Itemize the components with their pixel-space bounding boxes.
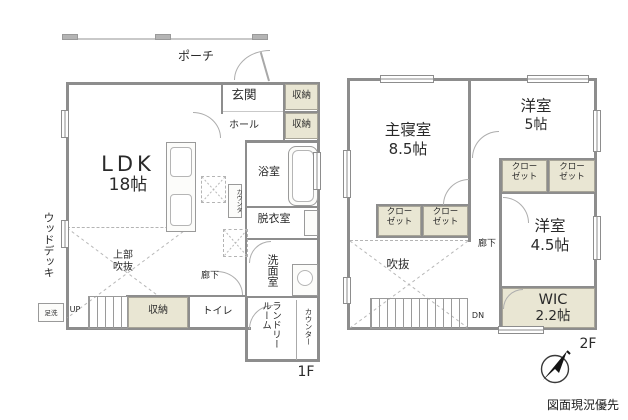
foot-wash-box: 足洗 — [38, 303, 64, 322]
wall — [247, 206, 318, 208]
bedroom5-size-label: 5帖 — [500, 117, 572, 133]
hall-storage-label: 収納 — [285, 120, 318, 131]
counter-divider — [296, 300, 297, 360]
master-bedroom-name-label: 主寝室 — [366, 122, 450, 140]
upper-void-label: 上部 吹抜 — [103, 250, 143, 273]
hall-label: ホール — [222, 120, 266, 132]
wic-name-label: WIC — [522, 292, 584, 309]
ldk-name-label: LDK — [88, 152, 168, 176]
foot-wash-label: 足洗 — [39, 304, 63, 323]
wic-size-label: 2.2帖 — [522, 309, 584, 325]
wall — [245, 140, 320, 143]
floor2-label: 2F — [574, 336, 602, 352]
wall — [376, 236, 468, 238]
kitchen-sink — [170, 147, 192, 177]
storage-label: 収納 — [128, 305, 188, 317]
closet-label: クロー ゼット — [549, 163, 595, 183]
closet-label: クロー ゼット — [423, 208, 468, 228]
disclaimer-text: 図面現況優先 — [542, 399, 624, 413]
washing-machine — [304, 210, 318, 236]
floor1-label: 1F — [292, 364, 320, 380]
window — [343, 277, 351, 304]
north-arrow-icon — [534, 344, 578, 388]
compass-icon — [534, 344, 578, 388]
stairs-up — [88, 296, 128, 329]
wall — [247, 238, 318, 240]
dressing-room-label: 脱衣室 — [246, 213, 302, 226]
wall — [247, 296, 318, 298]
toilet-label: トイレ — [190, 306, 245, 318]
window — [343, 150, 351, 198]
bedroom5-name-label: 洋室 — [500, 98, 572, 116]
dashed-x — [224, 230, 247, 256]
floor-plan: ポーチ 上部 吹抜 カウンタ — [0, 0, 628, 420]
window — [593, 216, 601, 260]
window — [61, 110, 69, 138]
entrance-storage-label: 収納 — [285, 91, 318, 102]
porch-label: ポーチ — [166, 50, 226, 64]
ldk-size-label: 18帖 — [88, 176, 168, 196]
bathtub-inner — [292, 150, 314, 202]
wall — [223, 111, 283, 112]
porch-post — [252, 34, 268, 40]
laundry-room-label: ランドリールーム — [254, 301, 280, 357]
stairs-up-label: UP — [64, 305, 86, 314]
window — [498, 326, 544, 334]
closet-label: クロー ゼット — [378, 208, 421, 228]
washroom-label: 洗面室 — [262, 244, 278, 296]
window — [593, 110, 601, 152]
kitchen-side-counter: カウンタ — [228, 184, 242, 218]
vanity-sink — [297, 270, 313, 286]
furniture-placeholder — [201, 176, 226, 203]
window — [380, 75, 434, 83]
stairs-down-label: DN — [466, 311, 490, 320]
dashed-x — [202, 177, 225, 202]
window — [527, 75, 589, 83]
corridor-label-1f: 廊下 — [196, 271, 224, 281]
porch-post — [62, 34, 78, 40]
wall — [502, 192, 597, 194]
void-label: 吹抜 — [378, 258, 418, 271]
kitchen-counter-label: カウンタ — [229, 185, 241, 217]
wall — [468, 78, 471, 242]
bedroom45-size-label: 4.5帖 — [512, 237, 588, 254]
counter-label: カウンター — [299, 308, 312, 358]
window — [313, 152, 321, 190]
bedroom45-name-label: 洋室 — [512, 218, 588, 236]
bath-label: 浴室 — [247, 166, 291, 179]
window — [61, 220, 69, 248]
closet-label: クロー ゼット — [502, 163, 547, 183]
master-bedroom-size-label: 8.5帖 — [366, 141, 450, 158]
kitchen-stove — [170, 194, 192, 226]
porch-post — [155, 34, 171, 40]
stairs-down — [370, 298, 468, 329]
corridor-label-2f: 廊下 — [474, 239, 500, 249]
entrance-label: 玄関 — [222, 88, 266, 102]
furniture-placeholder — [223, 229, 248, 257]
wood-deck-label: ウッドデッキ — [38, 212, 54, 300]
